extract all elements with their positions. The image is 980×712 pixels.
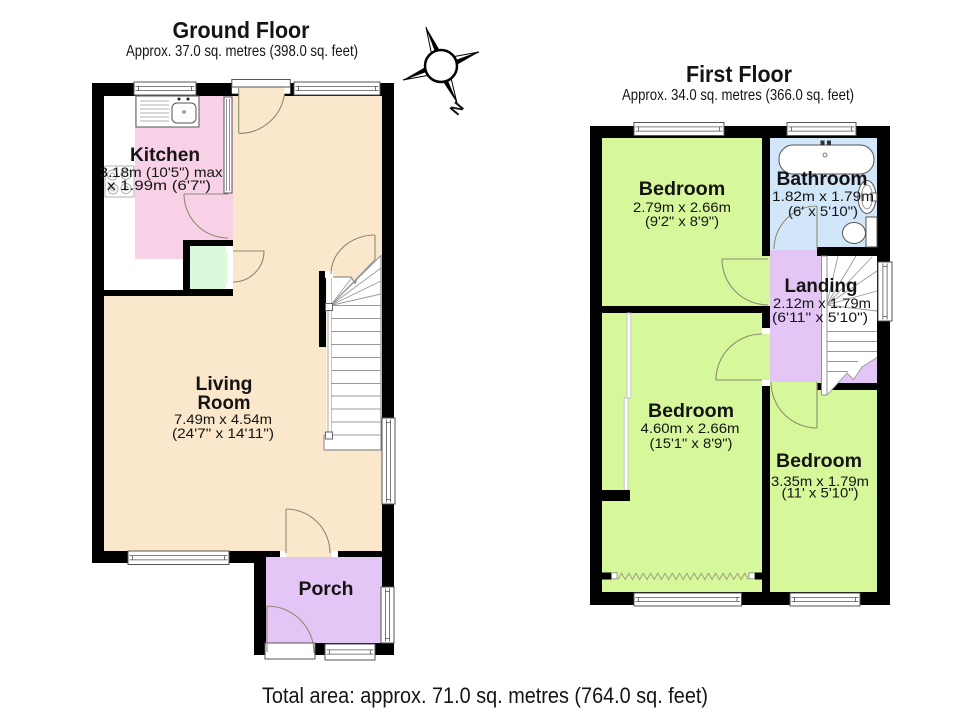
svg-text:(6'11" x 5'10"): (6'11" x 5'10") (772, 309, 868, 325)
svg-text:Landing: Landing (785, 276, 858, 297)
svg-text:First Floor: First Floor (686, 61, 792, 87)
svg-text:Bedroom: Bedroom (648, 401, 734, 422)
svg-text:Bedroom: Bedroom (776, 451, 862, 472)
svg-text:Kitchen: Kitchen (130, 145, 200, 166)
svg-text:(9'2" x 8'9"): (9'2" x 8'9") (645, 213, 719, 229)
svg-text:Bedroom: Bedroom (639, 179, 726, 200)
svg-text:Approx. 34.0 sq. metres (366.0: Approx. 34.0 sq. metres (366.0 sq. feet) (622, 87, 854, 104)
svg-text:(11' x 5'10"): (11' x 5'10") (782, 485, 859, 501)
svg-text:Approx. 37.0 sq. metres (398.0: Approx. 37.0 sq. metres (398.0 sq. feet) (126, 43, 358, 60)
svg-text:1.82m x 1.79m: 1.82m x 1.79m (772, 188, 874, 204)
svg-text:(15'1" x 8'9"): (15'1" x 8'9") (650, 435, 733, 451)
svg-text:Living: Living (196, 374, 253, 395)
svg-text:Total area: approx. 71.0 sq. m: Total area: approx. 71.0 sq. metres (764… (262, 683, 708, 708)
svg-text:Porch: Porch (299, 579, 354, 600)
svg-text:N: N (447, 99, 467, 119)
svg-text:x 1.99m (6'7"): x 1.99m (6'7") (107, 177, 211, 193)
svg-text:Bathroom: Bathroom (777, 169, 868, 190)
svg-text:(24'7" x 14'11"): (24'7" x 14'11") (172, 425, 274, 441)
svg-text:4.60m x 2.66m: 4.60m x 2.66m (641, 420, 740, 436)
svg-text:Ground Floor: Ground Floor (173, 17, 310, 43)
svg-text:(6' x 5'10"): (6' x 5'10") (788, 203, 858, 219)
